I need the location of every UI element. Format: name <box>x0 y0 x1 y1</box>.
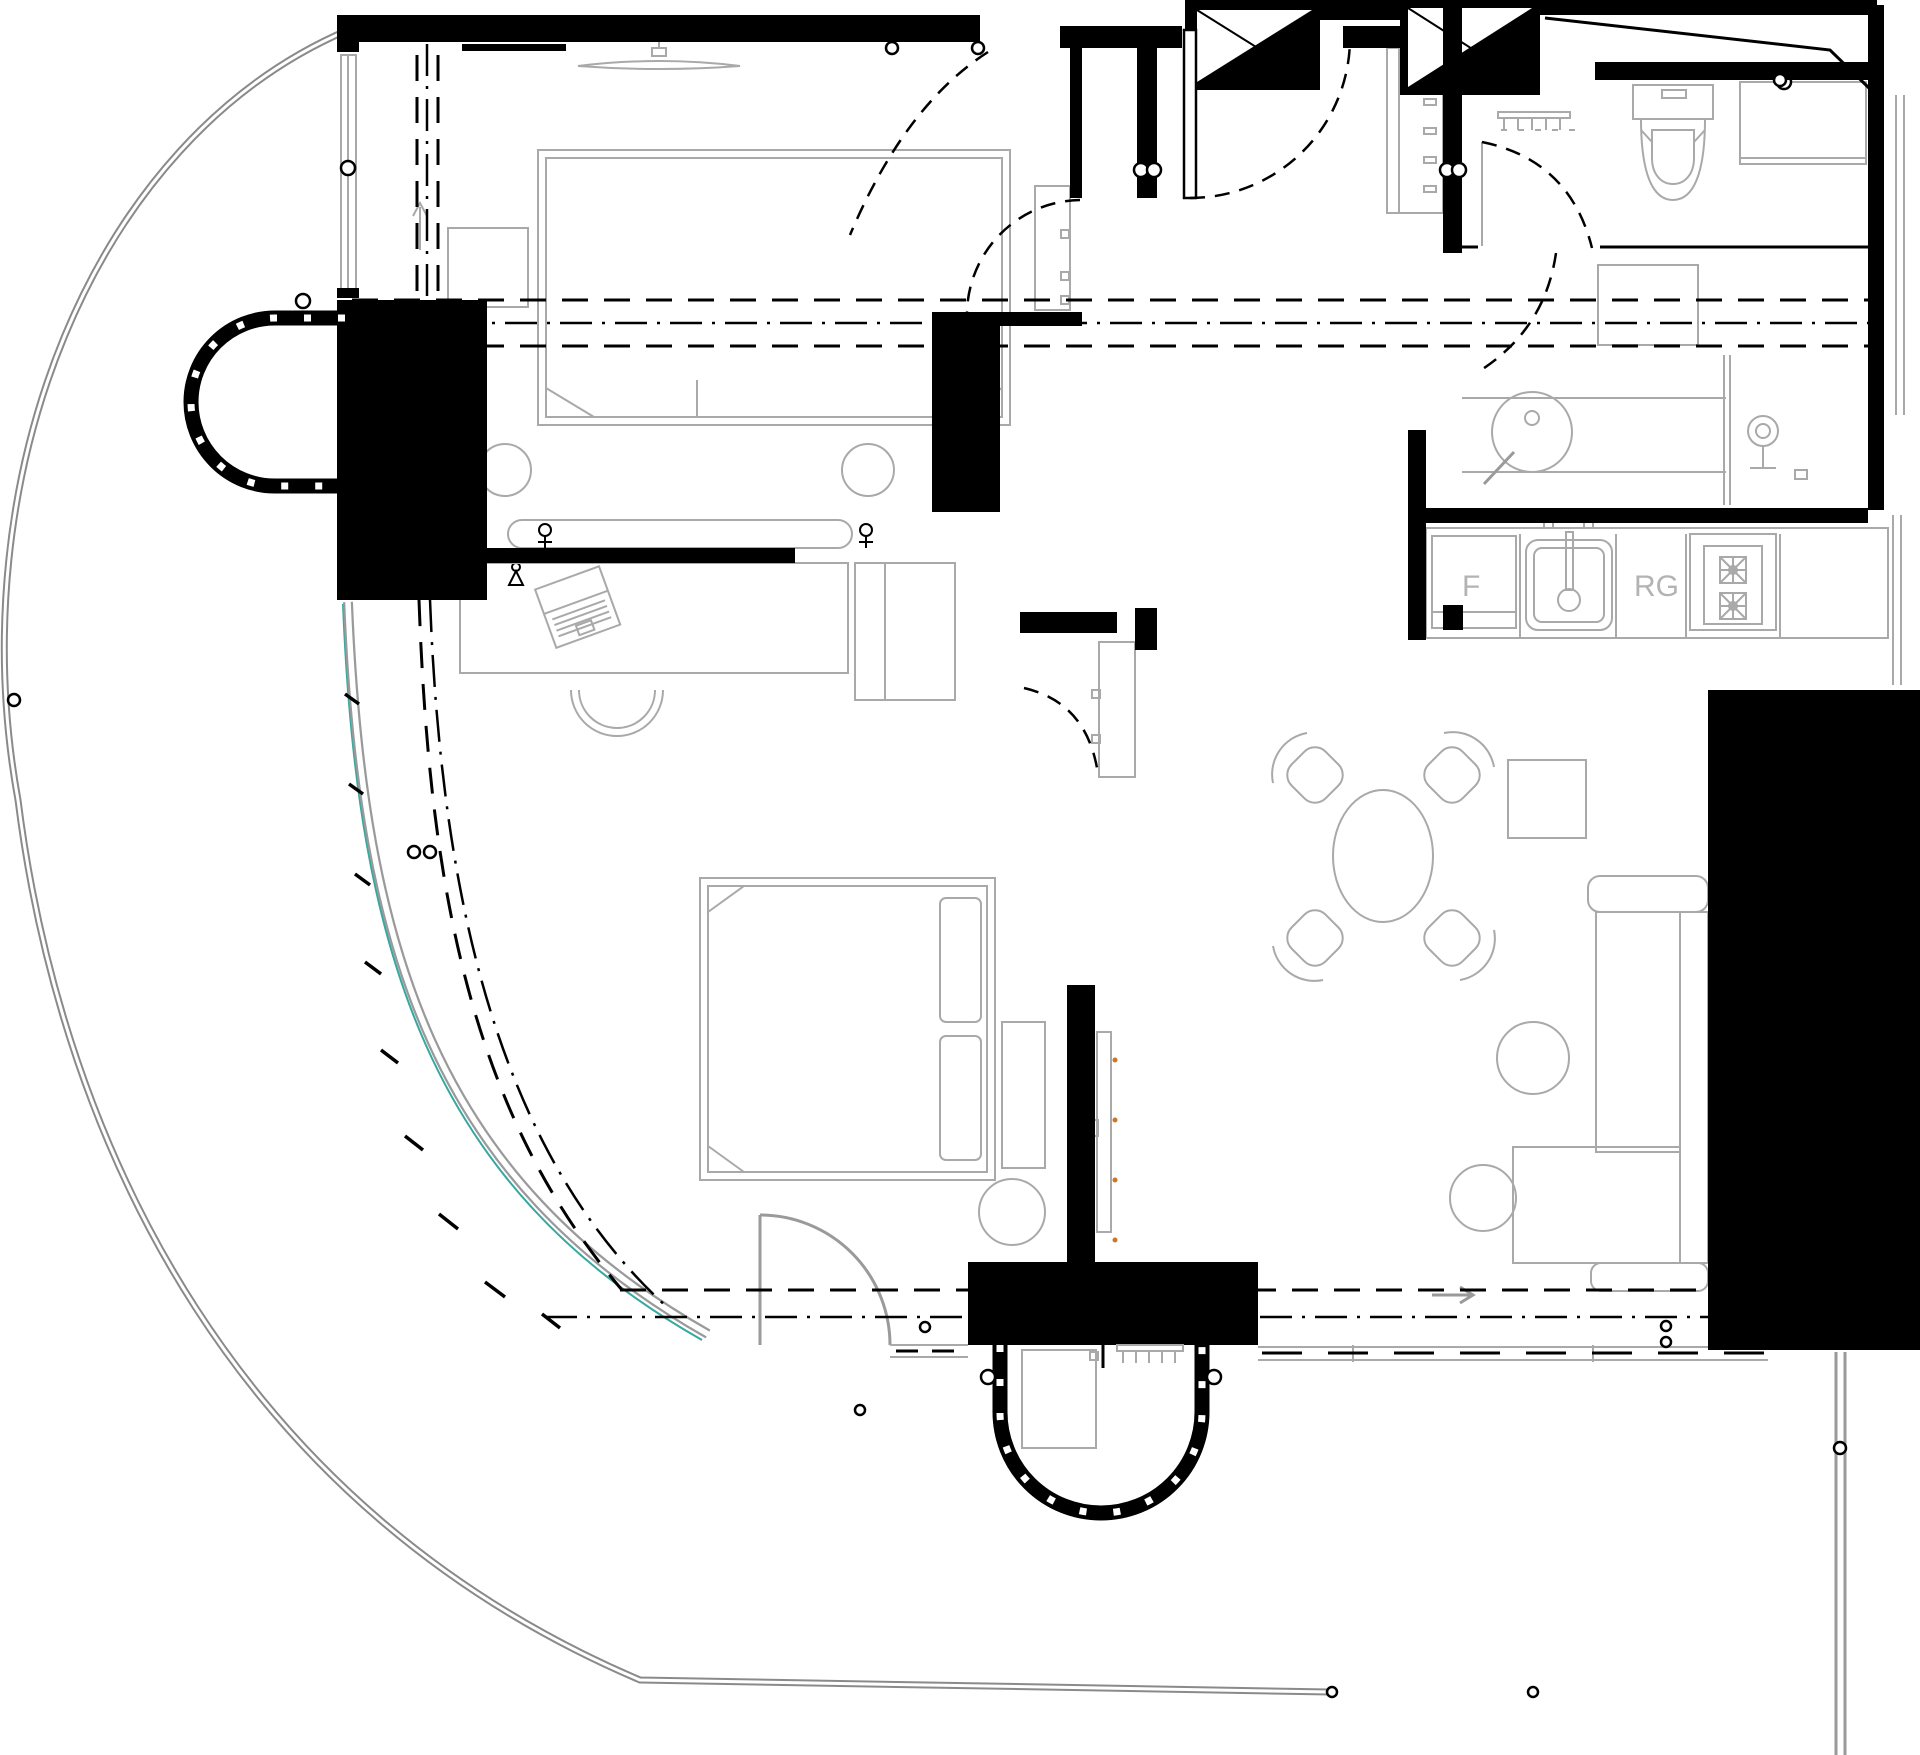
toilet-door-swing <box>1482 142 1592 248</box>
wall-right-top <box>1868 5 1884 510</box>
cabinet-living <box>1092 642 1135 777</box>
side-table-square <box>1508 760 1586 838</box>
radiator-toilet <box>1498 112 1575 130</box>
wall-far-top <box>1540 0 1877 15</box>
balcony-bottom <box>981 1345 1221 1513</box>
balcony-left <box>191 294 345 486</box>
window-neighbor-right-top <box>1896 95 1904 415</box>
floor-socket-icon-left <box>538 524 552 548</box>
shower-mixer <box>1748 416 1807 479</box>
marker-dots <box>1113 1058 1118 1243</box>
nightstand <box>448 228 528 307</box>
bench-foot-of-bed <box>508 520 852 548</box>
pendant-lamp-icon <box>509 563 523 585</box>
kitchen-furniture: F RG <box>1426 522 1888 638</box>
fridge-label: F <box>1462 570 1480 603</box>
dining-chair-nw <box>1272 733 1349 809</box>
shaft-block-left <box>1185 0 1320 90</box>
wall-bed1-bed2-divider <box>483 548 795 563</box>
wardrobe-desk-side <box>855 563 955 700</box>
markers <box>341 42 1786 1415</box>
dining-chair-sw <box>1273 904 1349 981</box>
hall-opening-swing <box>850 52 988 235</box>
balcony-bottom-marker-right <box>1207 1370 1221 1384</box>
wall-kitchen-left <box>1408 430 1426 640</box>
balcony-left-marker <box>296 294 310 308</box>
tv-panel-bedroom1 <box>578 42 740 69</box>
terrace-door <box>760 1215 890 1345</box>
pier-kitchen-front <box>1443 605 1463 630</box>
wash-basin <box>1484 392 1572 484</box>
terrace-marker-end <box>1327 1687 1337 1697</box>
terrace-boundary <box>4 30 1846 1755</box>
bed-2 <box>700 878 995 1180</box>
wall-hall-living-divider <box>1020 612 1117 633</box>
pier-diagonal <box>1135 608 1157 650</box>
shaft-block-right <box>1400 0 1540 95</box>
toilet-room-furniture <box>1498 75 1866 200</box>
desk-chair <box>571 690 663 736</box>
toilet-cabinet <box>1740 75 1866 164</box>
wall-bottom-center <box>968 1262 1258 1345</box>
terrace-marker-left <box>8 694 20 706</box>
pouf-1 <box>1497 1022 1569 1094</box>
laptop <box>535 566 620 648</box>
terrace-marker-mid <box>1528 1687 1538 1697</box>
floor-plan-page: F RG <box>0 0 1920 1755</box>
window-band-bed2-stub <box>890 1345 968 1357</box>
toilet <box>1633 85 1713 200</box>
pier-bedroom1-right <box>1070 42 1082 198</box>
walls <box>337 0 1920 1350</box>
floor-socket-icon-right <box>859 524 873 548</box>
glass-partition <box>1724 355 1730 505</box>
shower-tray <box>1598 265 1698 345</box>
balcony-bottom-marker-left <box>981 1370 995 1384</box>
window-right-kitchen <box>1893 515 1901 685</box>
gas-hob <box>1690 534 1776 630</box>
radiator-balcony <box>1117 1345 1183 1363</box>
dining-table <box>1333 790 1433 922</box>
entry-door-leaf <box>1184 30 1196 198</box>
wall-bathroom-bottom <box>1426 508 1868 523</box>
bedside-table <box>1002 1022 1045 1168</box>
north-arrow-icon <box>413 203 427 250</box>
floor-plan-canvas: F RG <box>0 0 1920 1755</box>
pouf-2 <box>1450 1165 1516 1231</box>
stool-bedroom2 <box>979 1179 1045 1245</box>
dining-chair-ne <box>1418 732 1494 809</box>
living-door-swing <box>1024 688 1097 768</box>
curtain-box <box>462 44 566 51</box>
wall-top-bedroom1 <box>337 15 980 42</box>
curved-window-bedroom2 <box>343 602 708 1340</box>
sofa <box>1513 876 1708 1291</box>
pier-entry-toilet <box>1443 0 1462 253</box>
living-dining-furniture <box>1092 642 1708 1303</box>
bathroom-door-swing <box>1478 253 1556 372</box>
desk <box>460 563 848 673</box>
dining-chair-se <box>1418 904 1495 980</box>
wall-right-mega <box>1708 690 1920 1350</box>
wall-toilet-top <box>1595 62 1870 80</box>
range-label: RG <box>1634 570 1679 603</box>
terrace-marker-right <box>1834 1442 1846 1454</box>
kitchen-sink <box>1526 522 1612 630</box>
ac-unit <box>1022 1350 1098 1448</box>
stool-bedroom1-right <box>842 444 894 496</box>
wall-t-slab <box>932 312 1000 512</box>
